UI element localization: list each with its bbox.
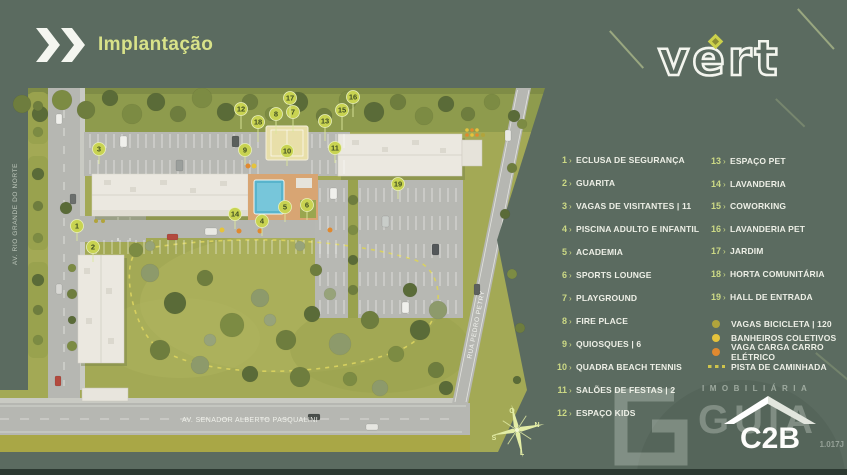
legend-item-arrow: › (723, 225, 730, 234)
compass-east-label: L (520, 450, 525, 457)
legend-item-number: 2 (552, 178, 567, 188)
c2b-roof-icon (724, 396, 774, 424)
poster: Implantação vert (0, 0, 847, 475)
legend-item-label: HORTA COMUNITÁRIA (730, 269, 825, 279)
legend-item-number: 13 (706, 156, 721, 166)
legend-item-label: HALL DE ENTRADA (730, 292, 813, 302)
legend-item: 3›VAGAS DE VISITANTES | 11 (552, 201, 702, 224)
legend-item-arrow: › (723, 157, 730, 166)
header: Implantação (36, 28, 213, 62)
legend-item-label: PISCINA ADULTO E INFANTIL (576, 224, 699, 234)
legend-item-arrow: › (569, 386, 576, 395)
legend-item-number: 16 (706, 224, 721, 234)
c2b-creci-text: 1.017J (820, 440, 844, 449)
legend-item-number: 6 (552, 270, 567, 280)
legend-item: 10›QUADRA BEACH TENNIS (552, 362, 702, 385)
vert-logo: vert (658, 28, 828, 94)
legend-item-label: JARDIM (730, 246, 764, 256)
legend-item-label: SALÕES DE FESTAS | 2 (576, 385, 675, 395)
legend-item-label: ESPAÇO PET (730, 156, 786, 166)
c2b-logo: C2B 1.017J (724, 392, 847, 456)
map-badge-number: 13 (321, 117, 329, 126)
compass-north-label: N (534, 422, 539, 429)
map-badge-number: 3 (97, 145, 101, 154)
legend-item-label: QUADRA BEACH TENNIS (576, 362, 682, 372)
legend-item-arrow: › (569, 248, 576, 257)
map-badge-number: 17 (286, 94, 294, 103)
legend-item-arrow: › (569, 409, 576, 418)
legend-column-1: 1›ECLUSA DE SEGURANÇA2›GUARITA3›VAGAS DE… (552, 155, 702, 431)
legend-item: 13›ESPAÇO PET (706, 156, 847, 179)
legend-item-number: 11 (552, 385, 567, 395)
legend-markers: VAGAS BICICLETA | 120BANHEIROS COLETIVOS… (706, 317, 847, 374)
marker-dot-icon (712, 320, 720, 328)
legend-item: 17›JARDIM (706, 246, 847, 269)
legend-item-number: 15 (706, 201, 721, 211)
legend-item-arrow: › (569, 294, 576, 303)
legend-item: 11›SALÕES DE FESTAS | 2 (552, 385, 702, 408)
legend-item-arrow: › (723, 270, 730, 279)
legend-item: 18›HORTA COMUNITÁRIA (706, 269, 847, 292)
map-badge-number: 19 (394, 180, 402, 189)
legend-item-number: 12 (552, 408, 567, 418)
legend-item-arrow: › (569, 340, 576, 349)
map-badge-number: 12 (237, 105, 245, 114)
legend-item-label: LAVANDERIA (730, 179, 786, 189)
map-badge-number: 15 (338, 106, 346, 115)
compass-rose: O N S L (488, 396, 552, 470)
legend-item-number: 7 (552, 293, 567, 303)
map-badge-number: 9 (243, 146, 247, 155)
legend-item-number: 14 (706, 179, 721, 189)
legend-item: 16›LAVANDERIA PET (706, 224, 847, 247)
legend-item: 14›LAVANDERIA (706, 179, 847, 202)
page-title: Implantação (98, 34, 213, 56)
legend-item-arrow: › (569, 271, 576, 280)
legend-item-label: ECLUSA DE SEGURANÇA (576, 155, 685, 165)
legend-item: 5›ACADEMIA (552, 247, 702, 270)
map-badge-number: 10 (283, 147, 291, 156)
legend-item-arrow: › (723, 293, 730, 302)
legend-item: 19›HALL DE ENTRADA (706, 292, 847, 315)
dashed-path-icon (708, 365, 725, 368)
legend-column-2: 13›ESPAÇO PET14›LAVANDERIA15›COWORKING16… (706, 156, 847, 314)
legend-marker: PISTA DE CAMINHADA (706, 360, 847, 374)
site-plan-map: 12345678910111213141516171819 AV. RIO GR… (0, 88, 562, 452)
legend-item-label: PLAYGROUND (576, 293, 637, 303)
legend-marker: VAGAS BICICLETA | 120 (706, 317, 847, 331)
legend-marker-label: VAGA CARGA CARRO ELÉTRICO (731, 342, 847, 362)
legend-item-label: QUIOSQUES | 6 (576, 339, 641, 349)
legend-item-number: 3 (552, 201, 567, 211)
chevrons-icon (36, 28, 86, 62)
legend-item-number: 19 (706, 292, 721, 302)
site-plan: 12345678910111213141516171819 AV. RIO GR… (0, 88, 562, 452)
legend-marker-label: PISTA DE CAMINHADA (731, 362, 827, 372)
map-badge-number: 18 (254, 118, 262, 127)
legend-item-number: 17 (706, 246, 721, 256)
legend-item-label: FIRE PLACE (576, 316, 628, 326)
map-badge-number: 11 (331, 144, 339, 153)
map-badge-number: 16 (349, 93, 357, 102)
legend-item-number: 18 (706, 269, 721, 279)
street-label-left: AV. RIO GRANDE DO NORTE (12, 163, 19, 265)
legend-item-label: LAVANDERIA PET (730, 224, 805, 234)
legend-item-arrow: › (569, 179, 576, 188)
legend-item: 8›FIRE PLACE (552, 316, 702, 339)
decor-line (775, 98, 805, 127)
compass-south-label: S (492, 435, 497, 442)
legend-item-number: 9 (552, 339, 567, 349)
legend-item-label: GUARITA (576, 178, 615, 188)
map-badge-number: 8 (274, 110, 278, 119)
map-badge-number: 1 (75, 222, 79, 231)
street-label-bottom: AV. SENADOR ALBERTO PASQUALINI (182, 417, 318, 424)
map-badge-number: 7 (291, 108, 295, 117)
map-badge-number: 2 (91, 243, 95, 252)
marker-dot-icon (712, 348, 720, 356)
legend-item: 6›SPORTS LOUNGE (552, 270, 702, 293)
legend-item-number: 8 (552, 316, 567, 326)
map-badge-number: 14 (231, 210, 240, 219)
legend-item-label: ACADEMIA (576, 247, 623, 257)
legend-item-number: 10 (552, 362, 567, 372)
marker-dot-icon (712, 334, 720, 342)
legend-item-arrow: › (723, 180, 730, 189)
legend-item-arrow: › (569, 225, 576, 234)
legend-item-arrow: › (569, 317, 576, 326)
legend-item-arrow: › (569, 156, 576, 165)
legend-item: 1›ECLUSA DE SEGURANÇA (552, 155, 702, 178)
legend-marker-label: VAGAS BICICLETA | 120 (731, 319, 832, 329)
legend-item-arrow: › (723, 202, 730, 211)
legend-item: 9›QUIOSQUES | 6 (552, 339, 702, 362)
legend-item-number: 1 (552, 155, 567, 165)
c2b-logo-text: C2B (740, 422, 800, 455)
legend-item-arrow: › (569, 202, 576, 211)
decor-line (609, 30, 644, 68)
map-badge-number: 5 (283, 203, 287, 212)
legend-item-label: COWORKING (730, 201, 786, 211)
legend-marker: VAGA CARGA CARRO ELÉTRICO (706, 345, 847, 359)
legend-item-number: 5 (552, 247, 567, 257)
legend-item: 4›PISCINA ADULTO E INFANTIL (552, 224, 702, 247)
legend-item-label: ESPAÇO KIDS (576, 408, 636, 418)
legend-item: 12›ESPAÇO KIDS (552, 408, 702, 431)
legend-item-arrow: › (569, 363, 576, 372)
legend-item-label: VAGAS DE VISITANTES | 11 (576, 201, 691, 211)
legend-item-number: 4 (552, 224, 567, 234)
legend-item-arrow: › (723, 247, 730, 256)
legend-item-label: SPORTS LOUNGE (576, 270, 652, 280)
legend-item: 7›PLAYGROUND (552, 293, 702, 316)
map-badge-number: 6 (305, 201, 309, 210)
legend-item: 2›GUARITA (552, 178, 702, 201)
compass-west-label: O (509, 408, 515, 415)
bottom-strip (0, 469, 847, 475)
legend-item: 15›COWORKING (706, 201, 847, 224)
